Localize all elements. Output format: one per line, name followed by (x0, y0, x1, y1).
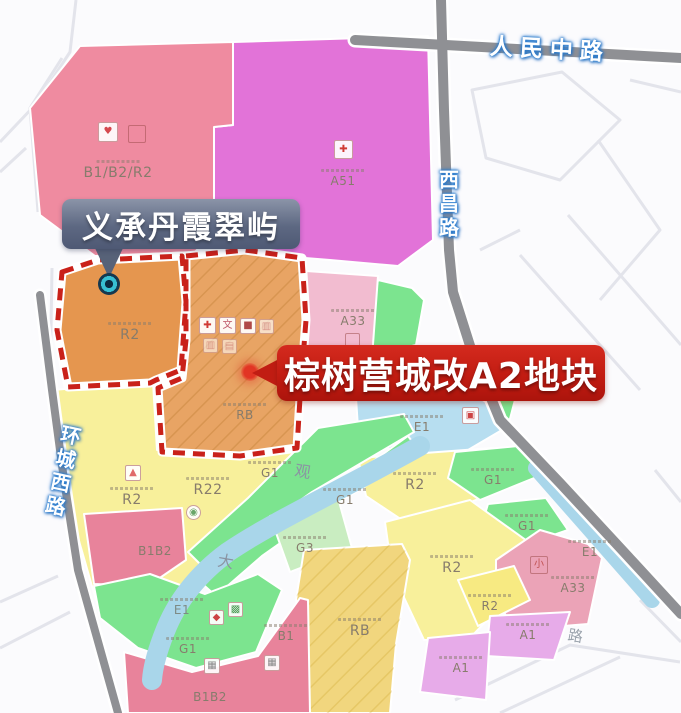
facility-faint-glyph2: ▥ (206, 341, 215, 351)
hospital-cross-icon: ✚ (334, 140, 353, 159)
parcel-label-g1-e2: G1 (505, 514, 549, 532)
sw-green-glyph: ▩ (231, 605, 240, 615)
parcel-label-a51: A51 (321, 169, 365, 187)
sw-red-icon: ◆ (209, 610, 224, 625)
project-callout: 义承丹霞翠屿 (62, 199, 300, 249)
parcel-label-g1-e1: G1 (471, 468, 515, 486)
parcel-label-a33-se: A33 (551, 576, 595, 594)
parcel-label-r2-e: R2 (393, 472, 437, 492)
parcel-label-g1-river-n: G1 (248, 461, 292, 479)
parcel-label-r2-se-small: R2 (468, 594, 512, 612)
pixel-badge-glyph: ▦ (207, 661, 216, 671)
clinic-cross-icon: ✚ (199, 317, 216, 334)
parcel-label-r2-w: R2 (110, 487, 154, 507)
facility-square-icon: ■ (240, 318, 256, 334)
sw-green-icon: ▩ (228, 602, 243, 617)
pixel-badge-icon: ▦ (204, 658, 220, 674)
parcel-label-b1b2-s: B1B2 (193, 691, 227, 703)
road-label-renmin: 人民中路 (489, 27, 611, 67)
facility-faint-icon: ▥ (259, 319, 274, 334)
project-callout-text: 义承丹霞翠屿 (82, 202, 280, 247)
project-location-marker (98, 273, 120, 295)
parcel-label-r22: R22 (186, 477, 230, 497)
facility-faint-glyph: ▥ (262, 322, 271, 332)
parcel-label-e1-canal: E1 (568, 540, 612, 558)
parcel-label-g1-river-s: G1 (323, 488, 367, 506)
r2w-marker-glyph: ▲ (129, 468, 137, 478)
zoning-map: B1/B2/R2 A51 R2 RB A33 R2 R22 B1B2 G1 G1… (0, 0, 681, 713)
primary-school-icon: 小 (530, 556, 548, 574)
parcel-label-r2-orange: R2 (108, 322, 152, 342)
round-badge-icon: ◉ (186, 505, 201, 520)
parcel-label-g3: G3 (283, 536, 327, 554)
primary-school-glyph: 小 (534, 560, 544, 570)
parcel-callout-text: 棕树营城改A2地块 (284, 347, 598, 399)
parcel-label-b1b2-w: B1B2 (138, 545, 172, 557)
facility-faint-icon2: ▥ (203, 338, 218, 353)
road-label-xichang: 西昌路 (434, 169, 463, 241)
pixel-badge-icon2: ▦ (264, 655, 280, 671)
facility-square-glyph: ■ (243, 321, 252, 331)
parcel-label-b1-s: B1 (264, 624, 308, 642)
clinic-cross-glyph: ✚ (203, 321, 211, 331)
outline-box-icon (128, 125, 146, 143)
parcel-label-r2-se: R2 (430, 555, 474, 575)
parcel-label-e1-lake: E1 (400, 415, 444, 433)
school-wen-glyph: 文 (223, 321, 233, 331)
parcel-label-e1-river: E1 (160, 598, 204, 616)
parcel-label-rb-s: RB (338, 618, 382, 638)
facility-icon-glyph: ♥ (104, 127, 113, 137)
facility-icon: ♥ (98, 122, 118, 142)
round-badge-glyph: ◉ (189, 508, 198, 518)
lake-facility-icon: ▣ (462, 407, 479, 424)
parcel-label-a1-s: A1 (439, 656, 483, 674)
parcel-label-rb-orange: RB (223, 403, 267, 421)
sw-red-glyph: ◆ (213, 613, 221, 623)
parcel-label-a1-e: A1 (506, 623, 550, 641)
r2w-marker-icon: ▲ (125, 465, 141, 481)
parcel-label-g1-sw: G1 (166, 637, 210, 655)
parcel-callout: 棕树营城改A2地块 (277, 345, 605, 401)
facility-faint-icon3: ▤ (222, 339, 237, 354)
lake-facility-glyph: ▣ (466, 411, 475, 421)
parcel-callout-tail (252, 359, 279, 387)
parcel-label-a33-n: A33 (331, 309, 375, 327)
facility-faint-glyph3: ▤ (225, 342, 234, 352)
parcel-label-b1b2r2: B1/B2/R2 (83, 160, 152, 180)
school-wen-icon: 文 (219, 317, 236, 334)
hospital-cross-glyph: ✚ (339, 145, 347, 155)
pixel-badge-glyph2: ▦ (267, 658, 276, 668)
